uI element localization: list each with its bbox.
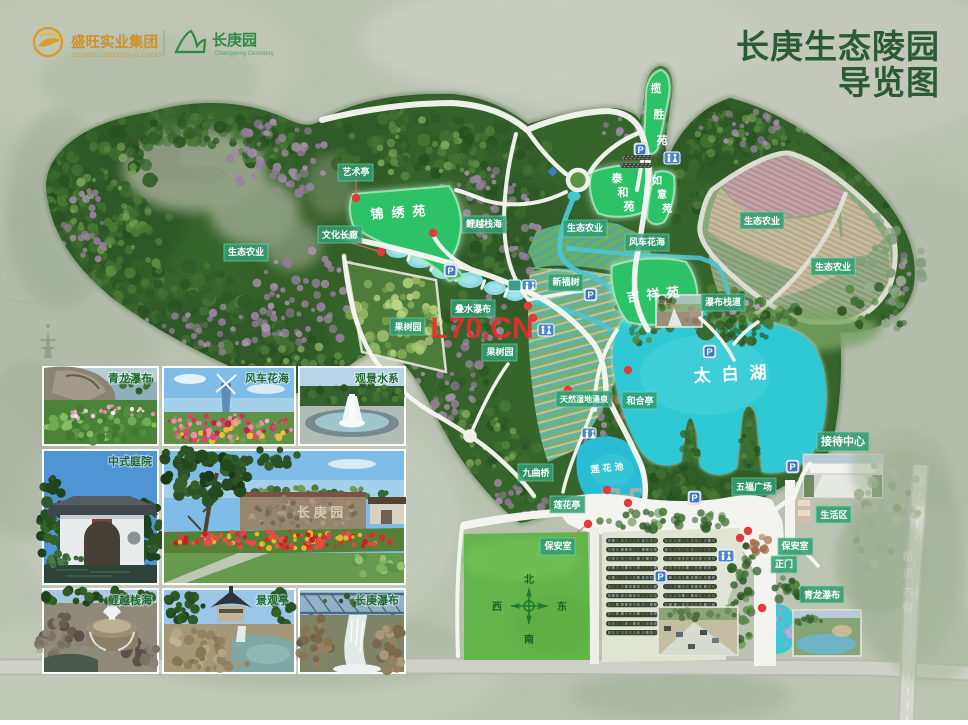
svg-text:白: 白 [721,364,739,385]
svg-text:湖: 湖 [749,363,767,383]
svg-text:和合亭: 和合亭 [625,395,653,406]
svg-text:果树园: 果树园 [393,321,421,332]
svg-text:景观亭: 景观亭 [255,593,289,607]
svg-text:风车花海: 风车花海 [629,236,665,247]
svg-text:生态农业: 生态农业 [228,246,264,257]
svg-text:东: 东 [557,600,567,613]
svg-text:南: 南 [524,633,534,646]
svg-text:P: P [691,493,698,504]
svg-text:P: P [657,572,664,583]
svg-text:和: 和 [618,185,629,199]
svg-text:长庚园: 长庚园 [212,31,257,49]
svg-text:L70.CN: L70.CN [430,312,533,345]
svg-text:正门: 正门 [775,558,793,569]
svg-text:生活区: 生活区 [820,509,847,520]
svg-text:西: 西 [492,601,502,613]
svg-text:五福广场: 五福广场 [736,481,772,492]
svg-text:P: P [637,145,644,156]
svg-text:艺术亭: 艺术亭 [342,166,369,177]
svg-text:长 庚 园: 长 庚 园 [297,505,343,520]
svg-text:观景水系: 观景水系 [355,371,399,385]
svg-text:如: 如 [652,174,662,187]
svg-text:揽: 揽 [651,81,662,95]
svg-text:生态农业: 生态农业 [815,261,851,272]
svg-text:祥: 祥 [646,286,661,302]
svg-text:生态农业: 生态农业 [744,215,780,226]
svg-text:鲤越栈海: 鲤越栈海 [107,593,152,607]
svg-text:花: 花 [602,462,612,474]
svg-text:天然湿地涌泉: 天然湿地涌泉 [560,394,609,404]
svg-text:北: 北 [524,573,534,586]
svg-text:中式庭院: 中式庭院 [108,454,152,468]
svg-text:鲤越栈海: 鲤越栈海 [465,218,502,229]
svg-text:果树园: 果树园 [485,346,513,357]
svg-text:接待中心: 接待中心 [821,434,865,448]
svg-text:泰: 泰 [611,171,624,185]
svg-text:苑: 苑 [623,199,635,213]
svg-text:苑: 苑 [411,203,426,219]
svg-text:版本号：2020056: 版本号：2020056 [36,644,100,654]
svg-text:风车花海: 风车花海 [245,371,289,385]
svg-text:文化长廊: 文化长廊 [321,229,358,240]
svg-text:苑: 苑 [665,284,681,300]
svg-text:锦: 锦 [370,206,384,222]
svg-text:保安室: 保安室 [780,540,808,551]
svg-text:莲: 莲 [590,463,600,475]
svg-text:青龙瀑布: 青龙瀑布 [108,371,152,385]
svg-text:莲花亭: 莲花亭 [553,499,580,510]
svg-text:绣: 绣 [391,204,406,220]
svg-text:长庚生态陵园: 长庚生态陵园 [736,28,940,65]
svg-text:长庚瀑布: 长庚瀑布 [355,593,399,607]
svg-text:P: P [706,347,713,358]
svg-text:吉: 吉 [626,288,641,304]
svg-text:九曲桥: 九曲桥 [521,467,550,478]
svg-text:瀑布栈道: 瀑布栈道 [705,296,741,307]
svg-text:青龙瀑布: 青龙瀑布 [804,589,840,600]
svg-text:导览图: 导览图 [838,64,940,101]
svg-text:盛旺实业集团: 盛旺实业集团 [71,33,158,51]
svg-text:P: P [587,290,594,301]
svg-text:意: 意 [657,188,667,201]
svg-text:苑: 苑 [661,202,672,215]
svg-text:胜: 胜 [653,107,665,121]
svg-text:新福树: 新福树 [552,276,579,287]
svg-text:SUNWELL INDUSTRIAL GROUP: SUNWELL INDUSTRIAL GROUP [72,52,164,59]
svg-text:苑: 苑 [656,133,668,147]
svg-text:保安室: 保安室 [543,540,571,551]
svg-text:生态农业: 生态农业 [567,222,603,233]
svg-text:P: P [447,266,454,277]
svg-text:P: P [789,462,796,473]
svg-text:池: 池 [614,460,624,472]
svg-text:Changgeng Cemetery: Changgeng Cemetery [215,51,274,57]
svg-text:太: 太 [693,365,712,386]
